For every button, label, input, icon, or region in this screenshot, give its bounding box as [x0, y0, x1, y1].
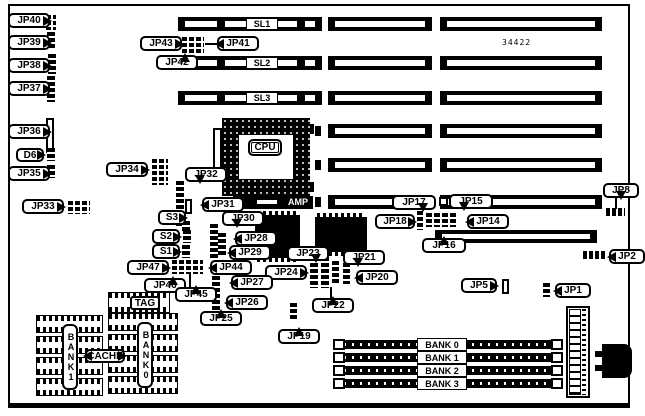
switch-callout-s2: S2: [152, 229, 180, 244]
slot-label-sl2: SL2: [246, 57, 278, 69]
jumper-callout-jp1: JP1: [555, 283, 591, 298]
jumper-callout-jp37: JP37: [8, 81, 50, 96]
jumper-callout-jp30: JP30: [222, 211, 264, 226]
isa-slot-r3-mid: [328, 91, 432, 105]
jumper-callout-jp32: JP32: [185, 167, 227, 182]
jumper-callout-jp45: JP45: [175, 287, 217, 302]
jumper-callout-jp19: JP19: [278, 329, 320, 344]
isa-slot-r4-mid: [328, 124, 432, 138]
switch-callout-s1: S1: [152, 244, 180, 259]
slot-label-sl1: SL1: [246, 18, 278, 30]
jumper-callout-jp5: JP5: [461, 278, 497, 293]
simm-bank3-label: BANK 3: [417, 377, 467, 390]
jumper-callout-jp2: JP2: [609, 249, 645, 264]
jumper-callout-jp31: JP31: [202, 197, 244, 212]
isa-slot-r5-mid: [328, 158, 432, 172]
amp-socket-bar: AMP: [233, 196, 313, 209]
simm-bank1-clip-left: [333, 352, 345, 363]
jumper-callout-jp47: JP47: [127, 260, 169, 275]
jumper-callout-jp40: JP40: [8, 13, 50, 28]
cache-bank0-label: BANK0: [137, 322, 153, 388]
jumper-callout-jp18: JP18: [375, 214, 415, 229]
jp8-jumper-strip: [606, 208, 625, 216]
jumper-callout-jp16: JP16: [422, 238, 466, 253]
keyboard-connector: [602, 344, 632, 378]
simm-bank2-clip-right: [551, 365, 563, 376]
simm-bank3-clip-left: [333, 378, 345, 389]
switch-callout-s3: S3: [158, 210, 186, 225]
jumper-callout-jp27: JP27: [231, 275, 273, 290]
simm-bank0-clip-left: [333, 339, 345, 350]
jumper-callout-jp21: JP21: [343, 250, 385, 265]
motherboard-jumper-diagram: SL1 SL2 SL3 34422 CPU AMP: [0, 0, 645, 416]
jumper-callout-jp38: JP38: [8, 58, 50, 73]
simm-bank1-clip-right: [551, 352, 563, 363]
power-connector: [566, 306, 590, 398]
jp33-jumper-block: [68, 201, 90, 214]
simm-bank0-label: BANK 0: [417, 338, 467, 351]
jumper-callout-jp15: JP15: [449, 194, 493, 209]
jumper-callout-jp36: JP36: [8, 124, 50, 139]
isa-slot-r4-right: [440, 124, 602, 138]
jumper-callout-jp28: JP28: [235, 231, 277, 246]
jumper-callout-jp44: JP44: [210, 260, 252, 275]
isa-slot-r3-right: [440, 91, 602, 105]
jumper-callout-jp34: JP34: [106, 162, 148, 177]
jumper-callout-jp23: JP23: [287, 246, 329, 261]
slot-nub-r5: [315, 160, 321, 170]
cpu-socket: [222, 118, 310, 196]
jumper-callout-jp29: JP29: [229, 245, 271, 260]
jp19-jumper-block: [290, 303, 297, 320]
isa-slot-r1-mid: [328, 17, 432, 31]
jumper-callout-jp22: JP22: [312, 298, 354, 313]
isa-slot-r5-right: [440, 158, 602, 172]
jumper-callout-jp41: JP41: [217, 36, 259, 51]
jumper-callout-jp39: JP39: [8, 35, 50, 50]
slot-nub-r4: [315, 126, 321, 136]
isa-slot-r1-right: [440, 17, 602, 31]
simm-bank1-label: BANK 1: [417, 351, 467, 364]
simm-bank0-clip-right: [551, 339, 563, 350]
board-part-number: 34422: [502, 38, 546, 48]
jumper-callout-jp8: JP8: [603, 183, 639, 198]
jp14-jp16-header2: [434, 213, 440, 227]
jumper-callout-jp14: JP14: [467, 214, 509, 229]
tag-label: TAG: [130, 296, 160, 310]
cache-bank1-label: BANK1: [62, 324, 78, 390]
jumper-callout-jp35: JP35: [8, 166, 50, 181]
simm-bank3-clip-right: [551, 378, 563, 389]
jumper-callout-jp33: JP33: [22, 199, 64, 214]
jumper-callout-jp25: JP25: [200, 311, 242, 326]
cache-label: CACHE: [85, 349, 125, 363]
slot-nub-r6: [315, 197, 321, 207]
jumper-callout-jp42: JP42: [156, 55, 198, 70]
jp14-jp16-header3: [442, 213, 448, 227]
jp20-cluster-col2: [321, 257, 329, 288]
jp20-cluster-col3: [332, 261, 339, 284]
simm-bank2-clip-left: [333, 365, 345, 376]
jp30-jumper-strip: [210, 224, 218, 258]
jp15-pad: [439, 197, 448, 206]
simm-bank2-label: BANK 2: [417, 364, 467, 377]
slot-label-sl3: SL3: [246, 92, 278, 104]
diode-callout-d6: D6: [16, 148, 44, 162]
jp14-jp16-header4: [450, 213, 456, 227]
isa-slot-r2-mid: [328, 56, 432, 70]
jumper-callout-jp17: JP17: [392, 195, 436, 210]
jumper-callout-jp26: JP26: [226, 295, 268, 310]
cpu-label: CPU: [248, 139, 282, 156]
jumper-callout-jp20: JP20: [356, 270, 398, 285]
jumper-callout-jp43: JP43: [140, 36, 182, 51]
isa-slot-r2-right: [440, 56, 602, 70]
